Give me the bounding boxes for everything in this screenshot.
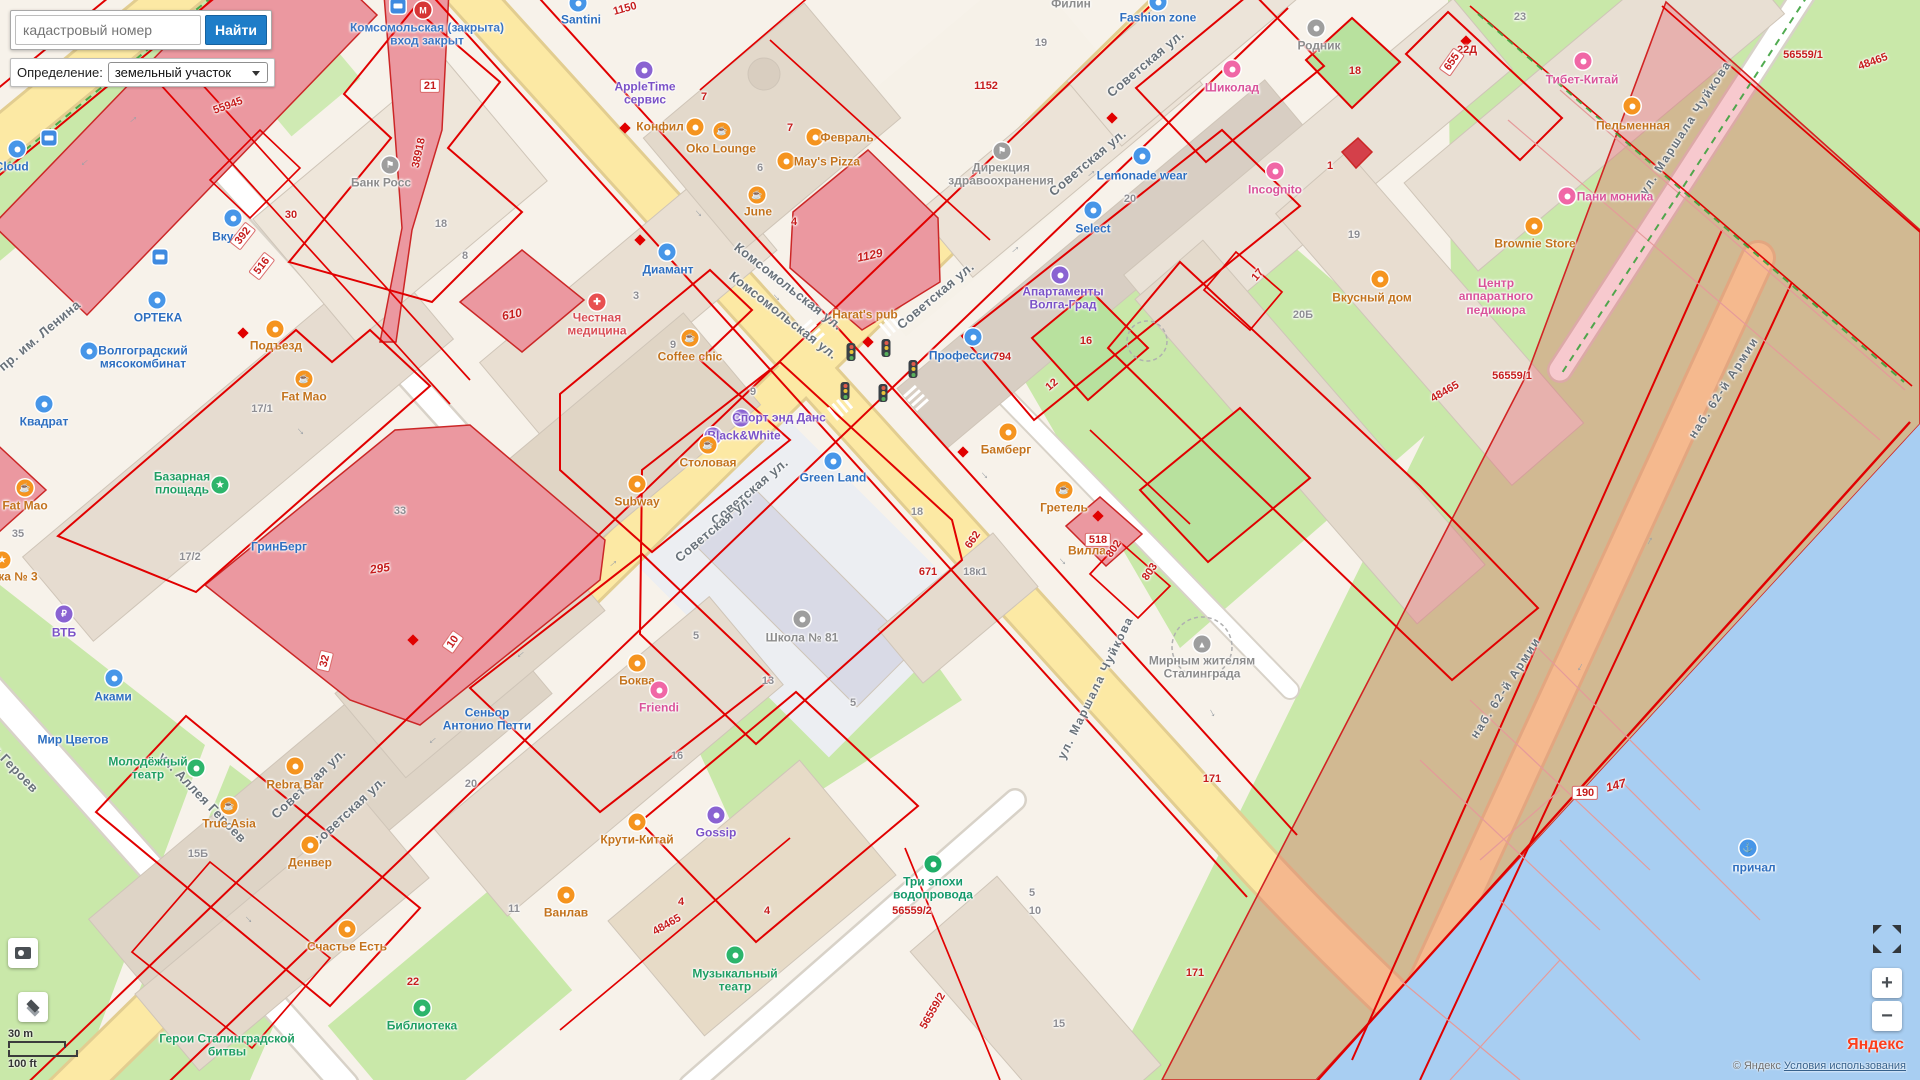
parcel-number: 671	[919, 566, 937, 578]
house-number: 35	[12, 528, 24, 540]
house-number: 23	[1514, 11, 1526, 23]
poi-label[interactable]: Black&White	[707, 429, 780, 442]
poi-icon[interactable]	[1134, 148, 1151, 165]
poi-icon[interactable]	[925, 856, 942, 873]
parcel-number: 18	[1349, 65, 1361, 77]
zoom-in-button[interactable]: +	[1872, 968, 1902, 998]
poi-label[interactable]: Молодёжный театр	[108, 756, 187, 783]
copyright-text: © Яндекс	[1733, 1060, 1781, 1072]
poi-label[interactable]: Harat's pub	[832, 308, 898, 321]
poi-icon[interactable]	[81, 343, 98, 360]
poi-label[interactable]: Friendi	[639, 701, 679, 714]
poi-icon[interactable]	[651, 682, 668, 699]
house-number: 18	[911, 506, 923, 518]
parcel-number: 171	[1186, 967, 1204, 979]
poi-label[interactable]: Сеньор Антонио Петти	[443, 707, 532, 734]
poi-icon[interactable]	[659, 244, 676, 261]
poi-icon[interactable]	[1559, 188, 1576, 205]
poi-label[interactable]: причал	[1732, 861, 1775, 874]
house-number: 18к1	[963, 566, 987, 578]
poi-icon[interactable]	[1308, 20, 1325, 37]
poi-icon[interactable]: ⚑	[382, 157, 399, 174]
search-input[interactable]	[15, 15, 201, 45]
scale-metric: 30 m	[8, 1028, 78, 1040]
poi-icon[interactable]	[778, 153, 795, 170]
house-number: 15	[1053, 1018, 1065, 1030]
poi-icon[interactable]	[287, 758, 304, 775]
poi-icon[interactable]	[636, 62, 653, 79]
poi-label[interactable]: Мирным жителям Сталинграда	[1149, 655, 1255, 682]
poi-label[interactable]: Герои Сталинградской битвы	[159, 1033, 294, 1060]
poi-label[interactable]: Библиотека	[387, 1019, 457, 1032]
poi-icon[interactable]	[225, 210, 242, 227]
poi-icon[interactable]: ⚓	[1740, 840, 1757, 857]
poi-label[interactable]: Дирекция здравоохранения	[948, 162, 1053, 189]
house-number: 11	[508, 903, 520, 915]
poi-label[interactable]: Santini	[561, 13, 601, 26]
object-type-select[interactable]: земельный участок	[108, 62, 268, 83]
poi-label[interactable]: Диамант	[642, 263, 693, 276]
poi-icon[interactable]: ☕	[682, 330, 699, 347]
house-number: 16	[671, 750, 683, 762]
poi-label[interactable]: Ванлав	[544, 906, 588, 919]
house-number: 19	[1035, 37, 1047, 49]
poi-label[interactable]: Fat Mao	[2, 499, 47, 512]
poi-icon[interactable]	[794, 611, 811, 628]
parcel-number: 7	[787, 122, 793, 134]
poi-label[interactable]: Апартаменты Волга-Град	[1022, 286, 1103, 313]
poi-icon[interactable]	[629, 655, 646, 672]
poi-label[interactable]: True Asia	[202, 817, 256, 830]
poi-icon[interactable]: ₽	[56, 606, 73, 623]
poi-label[interactable]: Родник	[1297, 39, 1340, 52]
poi-label[interactable]: Волгоградский мясокомбинат	[98, 345, 187, 372]
house-number: 5	[693, 630, 699, 642]
yandex-logo[interactable]: Яндекс	[1847, 1036, 1904, 1054]
parcel-number: 21	[420, 79, 440, 93]
poi-label[interactable]: Филин	[1051, 0, 1091, 11]
search-panel: Найти	[10, 10, 272, 50]
poi-icon[interactable]	[1224, 61, 1241, 78]
poi-label[interactable]: Подъезд	[250, 339, 302, 352]
layers-button[interactable]	[18, 992, 48, 1022]
poi-icon[interactable]	[302, 837, 319, 854]
poi-label[interactable]: June	[744, 205, 772, 218]
poi-icon[interactable]	[1372, 271, 1389, 288]
poi-label[interactable]: Центр аппаратного педикюра	[1459, 277, 1533, 317]
poi-icon[interactable]: ☕	[714, 123, 731, 140]
attribution: © Яндекс Условия использования	[1733, 1060, 1906, 1072]
poi-label[interactable]: Gossip	[696, 826, 737, 839]
zoom-out-button[interactable]: −	[1872, 1001, 1902, 1031]
poi-icon[interactable]: ▲	[1194, 636, 1211, 653]
poi-label[interactable]: ВТБ	[52, 626, 76, 639]
poi-icon[interactable]	[9, 141, 26, 158]
poi-label[interactable]: iCloud	[0, 160, 29, 173]
scale-imperial-bracket	[8, 1050, 78, 1057]
poi-label[interactable]: Fashion zone	[1120, 11, 1197, 24]
poi-label[interactable]: Green Land	[800, 471, 867, 484]
poi-icon[interactable]	[1624, 98, 1641, 115]
search-button[interactable]: Найти	[205, 15, 267, 45]
poi-icon[interactable]	[825, 453, 842, 470]
poi-label[interactable]: ОРТЕКА	[134, 311, 183, 324]
parcel-number: 518	[1085, 533, 1111, 547]
poi-icon[interactable]	[1085, 202, 1102, 219]
poi-label[interactable]: Счастье Есть	[307, 940, 387, 953]
poi-label[interactable]: Крути-Китай	[600, 833, 673, 846]
house-number: 8	[462, 250, 468, 262]
parcel-number: 190	[1572, 786, 1598, 800]
house-number: 10	[1029, 905, 1041, 917]
scale-bar: 30 m 100 ft	[8, 1028, 78, 1070]
layers-icon	[24, 999, 42, 1015]
house-number: 17/1	[251, 403, 272, 415]
fullscreen-icon	[1873, 925, 1882, 934]
poi-label[interactable]: Базарная площадь	[154, 471, 210, 498]
poi-label[interactable]: Brownie Store	[1494, 237, 1575, 250]
parcel-number: 22	[407, 976, 419, 988]
poi-icon[interactable]	[965, 329, 982, 346]
house-number: 6	[757, 162, 763, 174]
poi-label[interactable]: Денвер	[288, 856, 332, 869]
poi-label[interactable]: Спорт энд Данс	[732, 411, 826, 424]
house-number: 9	[750, 386, 756, 398]
poi-label[interactable]: Февраль	[820, 131, 873, 144]
poi-icon[interactable]: ☕	[296, 371, 313, 388]
poi-label[interactable]: Честная медицина	[567, 312, 626, 339]
parcel-number: 171	[1203, 773, 1221, 785]
transit-stop-icon	[42, 131, 57, 146]
poi-label[interactable]: May's Pizza	[794, 155, 860, 168]
panorama-button[interactable]	[8, 938, 38, 968]
poi-label[interactable]: Три эпохи водопровода	[893, 876, 973, 903]
fullscreen-button[interactable]	[1873, 925, 1901, 953]
poi-icon[interactable]: ✚	[589, 294, 606, 311]
poi-icon[interactable]: ☕	[700, 437, 717, 454]
transit-stop-icon	[153, 250, 168, 265]
poi-label[interactable]: Профессио	[929, 349, 997, 362]
parcel-number: 4	[678, 896, 684, 908]
poi-icon[interactable]	[1526, 218, 1543, 235]
poi-icon[interactable]	[1575, 53, 1592, 70]
poi-icon[interactable]: ☕	[221, 798, 238, 815]
poi-label[interactable]: Rebra Bar	[266, 778, 323, 791]
house-number: 18	[435, 218, 447, 230]
poi-icon[interactable]	[629, 476, 646, 493]
poi-label[interactable]: Coffee chic	[658, 350, 723, 363]
poi-label[interactable]: Бамберг	[981, 443, 1031, 456]
poi-icon[interactable]	[339, 921, 356, 938]
parcel-number: 4	[764, 905, 770, 917]
parcel-number: 56559/2	[892, 905, 932, 917]
poi-label[interactable]: Fat Mao	[281, 390, 326, 403]
poi-label[interactable]: Пельменная	[1596, 119, 1670, 132]
house-number: 5	[850, 697, 856, 709]
parcel-number: 1152	[974, 80, 998, 92]
poi-label[interactable]: Тибет-Китай	[1546, 73, 1619, 86]
filter-panel: Определение: земельный участок	[10, 58, 275, 87]
poi-label[interactable]: Столовая	[679, 456, 736, 469]
poi-label[interactable]: Вкусный дом	[1332, 291, 1412, 304]
metro-icon[interactable]: M	[415, 2, 432, 19]
poi-label[interactable]: ГринБерг	[251, 540, 307, 553]
poi-label[interactable]: Select	[1075, 222, 1110, 235]
poi-label[interactable]: Мир Цветов	[38, 733, 109, 746]
cadastral-map-app: Комсомольская ул.Комсомольская ул.Советс…	[0, 0, 1920, 1080]
poi-icon[interactable]	[687, 119, 704, 136]
traffic-light-icon	[879, 384, 888, 402]
poi-icon[interactable]	[267, 321, 284, 338]
house-number: 15Б	[188, 848, 208, 860]
house-number: 9	[670, 339, 676, 351]
poi-icon[interactable]	[629, 814, 646, 831]
poi-icon[interactable]	[106, 670, 123, 687]
poi-icon[interactable]: ☕	[749, 187, 766, 204]
poi-icon[interactable]	[149, 292, 166, 309]
poi-label[interactable]: Incognito	[1248, 183, 1302, 196]
house-number: 20	[465, 778, 477, 790]
poi-label[interactable]: Subway	[614, 495, 659, 508]
poi-label[interactable]: ка № 3	[0, 570, 38, 583]
parcel-number: 56559/1	[1492, 370, 1532, 382]
poi-icon[interactable]	[708, 807, 725, 824]
house-number: 17/2	[179, 551, 200, 563]
traffic-light-icon	[909, 360, 918, 378]
poi-label[interactable]: Боква	[619, 674, 655, 687]
house-number: 33	[394, 505, 406, 517]
poi-icon[interactable]	[1052, 267, 1069, 284]
house-number: 20	[1124, 193, 1136, 205]
poi-icon[interactable]: ☕	[17, 480, 34, 497]
parcel-number: 1	[1327, 160, 1333, 172]
poi-label[interactable]: Школа № 81	[766, 631, 839, 644]
poi-label[interactable]: Аками	[94, 690, 132, 703]
parcel-number: 16	[1080, 335, 1092, 347]
traffic-light-icon	[841, 382, 850, 400]
transit-stop-icon	[391, 0, 406, 14]
poi-icon[interactable]: ☕	[1056, 482, 1073, 499]
poi-label[interactable]: Конфил	[636, 120, 683, 133]
poi-icon[interactable]	[1000, 424, 1017, 441]
poi-icon[interactable]	[188, 760, 205, 777]
poi-label[interactable]: Oko Lounge	[686, 142, 756, 155]
poi-icon[interactable]	[727, 947, 744, 964]
poi-label[interactable]: Гретель	[1040, 501, 1088, 514]
poi-label[interactable]: Шиколад	[1205, 81, 1259, 94]
poi-icon[interactable]	[414, 1000, 431, 1017]
poi-label[interactable]: Lemonade wear	[1097, 169, 1188, 182]
poi-label[interactable]: Комсомольская (закрыта) вход закрыт	[350, 22, 504, 49]
house-number: 13	[762, 675, 774, 687]
parcel-number: 4	[791, 216, 797, 228]
traffic-light-icon	[847, 343, 856, 361]
scale-imperial: 100 ft	[8, 1058, 78, 1070]
poi-icon[interactable]	[1267, 163, 1284, 180]
poi-label[interactable]: Музыкальный театр	[692, 968, 777, 995]
parcel-number: 7	[701, 91, 707, 103]
poi-label[interactable]: Пани моника	[1577, 190, 1654, 203]
panorama-icon	[15, 947, 31, 959]
house-number: 20Б	[1293, 309, 1313, 321]
terms-link[interactable]: Условия использования	[1784, 1060, 1906, 1072]
poi-icon[interactable]	[558, 887, 575, 904]
scale-metric-bracket	[8, 1041, 66, 1048]
poi-label[interactable]: Квадрат	[20, 415, 69, 428]
poi-label[interactable]: Банк Росс	[351, 176, 411, 189]
parcel-number: 30	[285, 209, 297, 221]
poi-icon[interactable]	[36, 396, 53, 413]
parcel-number: 56559/1	[1783, 49, 1823, 61]
filter-label: Определение:	[17, 65, 103, 80]
poi-icon[interactable]: ★	[212, 477, 229, 494]
parcel-number: 794	[993, 351, 1011, 363]
house-number: 5	[1029, 887, 1035, 899]
traffic-light-icon	[882, 339, 891, 357]
parcel-number: 295	[369, 561, 391, 577]
poi-label[interactable]: AppleTime сервис	[614, 81, 675, 108]
house-number: 19	[1348, 229, 1360, 241]
house-number: 3	[633, 290, 639, 302]
poi-icon[interactable]: ⚑	[994, 143, 1011, 160]
